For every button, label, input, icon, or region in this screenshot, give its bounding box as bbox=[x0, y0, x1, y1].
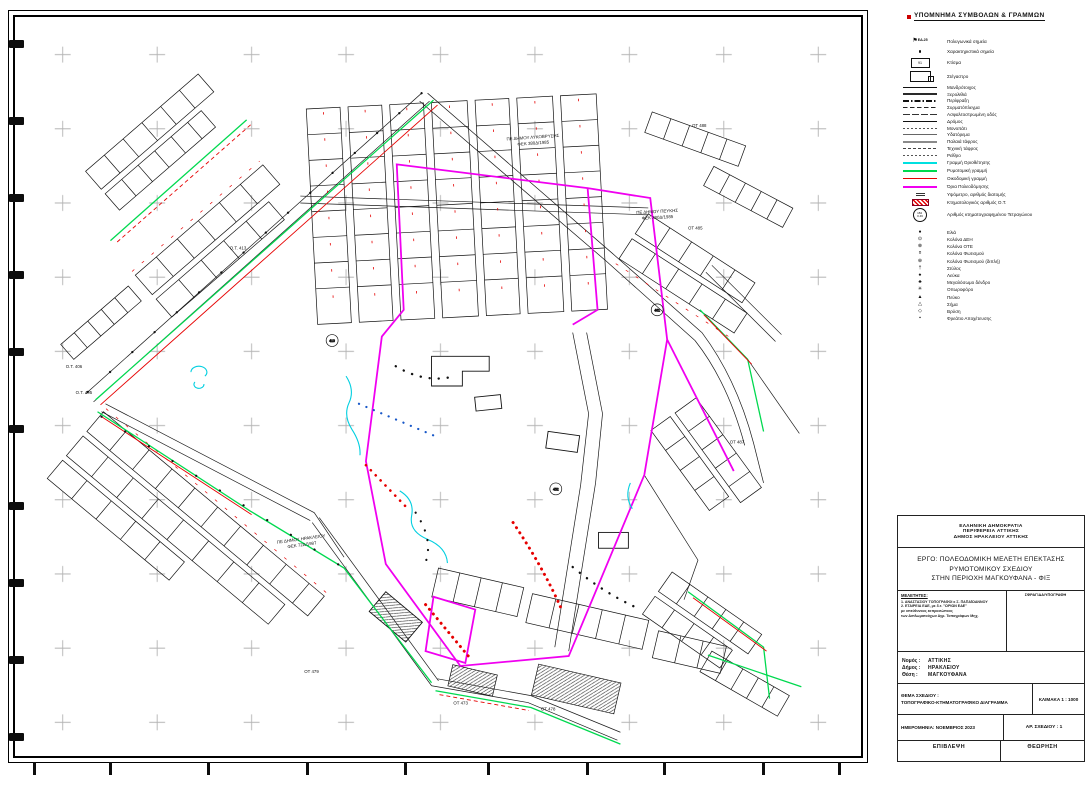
legend-item-label: Γραμμή Οριοθέτησης bbox=[947, 160, 990, 165]
legend-item-label: Πεύκο bbox=[947, 295, 960, 300]
legend-item-label: Κολόνα ΔΕΗ bbox=[947, 237, 973, 242]
legend-item: Μονοπάτι bbox=[893, 125, 1085, 132]
post-icon: † bbox=[893, 266, 947, 271]
poplar-tree-icon: ♠ bbox=[893, 273, 947, 278]
legend-point-item: ⊙ Κολόνα ΔΕΗ bbox=[893, 236, 1085, 243]
supervision-cell: ΕΠΙΒΛΕΨΗ bbox=[898, 741, 1001, 761]
subject-label: ΘΕΜΑ ΣΧΕΔΙΟΥ : bbox=[901, 693, 1029, 698]
drawing-number-cell: ΑΡ. ΣΧΕΔΙΟΥ : 1 bbox=[1004, 715, 1084, 740]
legend-point-item: † Στύλος bbox=[893, 265, 1085, 272]
legend-item: Συρματόπλεγμα bbox=[893, 104, 1085, 111]
legend-point-item: ♣ Μεγαλόσωμο δένδρο bbox=[893, 279, 1085, 286]
approval-cell: ΘΕΩΡΗΣΗ bbox=[1001, 741, 1084, 761]
map-canvas: 410 452 461 Ο.Τ. 413 Ο.Τ. 406 Ο.Τ. 405 Ο… bbox=[16, 18, 861, 755]
legend-item: Υψόμετρο, αριθμός διατομής bbox=[893, 191, 1085, 199]
legend-item: Στέγαστρο bbox=[893, 69, 1085, 84]
svg-text:ΟΤ 487: ΟΤ 487 bbox=[730, 439, 745, 444]
legend-item: Μανδρότοιχος bbox=[893, 84, 1085, 91]
subject-value: ΤΟΠΟΓΡΑΦΙΚΟ-ΚΤΗΜΑΤΟΓΡΑΦΙΚΟ ΔΙΑΓΡΑΜΜΑ bbox=[901, 700, 1029, 705]
legend-item: Ρείθρο bbox=[893, 152, 1085, 159]
legend-item-label: Μανδρότοιχος bbox=[947, 85, 976, 90]
legend-item: Τεχνική τάφρος bbox=[893, 145, 1085, 152]
svg-text:452: 452 bbox=[553, 487, 559, 491]
sign-icon: △ bbox=[893, 302, 947, 307]
grid-tick bbox=[404, 762, 407, 775]
legend-point-items: ● Ελιά ⊙ Κολόνα ΔΕΗ ⊗ Κολόνα ΟΤΕ ¤ Κολόν… bbox=[893, 229, 1085, 322]
fruit-tree-icon: ✳ bbox=[893, 287, 947, 292]
line-sample-icon bbox=[893, 128, 947, 129]
legend-point-item: ◇ Βρύση bbox=[893, 308, 1085, 315]
legend-item: Όρια Πολεοδόμησης bbox=[893, 183, 1085, 191]
legend-item-label: Περίφραξη bbox=[947, 98, 969, 103]
legend-item-label: Βρύση bbox=[947, 309, 961, 314]
legend-item-label: Στέγαστρο bbox=[947, 74, 968, 79]
legend-items: ⚑ΕΔ.25 Πολυγωνικά σημεία Χαρακτηριστικά … bbox=[893, 35, 1085, 223]
legend-point-item: ♠ Λεύκα bbox=[893, 272, 1085, 279]
legend-item-label: Πολυγωνικά σημεία bbox=[947, 39, 987, 44]
svg-text:Ο.Τ. 405: Ο.Τ. 405 bbox=[76, 390, 93, 395]
legend-item-label: Ρείθρο bbox=[947, 153, 961, 158]
legend-item: Γραμμή Οριοθέτησης bbox=[893, 159, 1085, 167]
stamp-heading: ΣΦΡΑΓΙΔΑ/ΥΠΟΓΡΑΦΗ bbox=[1007, 593, 1084, 597]
alignment-line-icon bbox=[893, 170, 947, 172]
prefecture-label: Νομός : bbox=[902, 658, 928, 664]
designers-heading: ΜΕΛΕΤΗΤΕΣ: bbox=[901, 593, 1003, 598]
grid-coordinate-tag bbox=[9, 425, 24, 433]
line-sample-icon bbox=[893, 100, 947, 101]
signature-section: ΕΠΙΒΛΕΨΗ ΘΕΩΡΗΣΗ bbox=[898, 741, 1084, 761]
legend-item-label: Σήμα bbox=[947, 302, 958, 307]
line-sample-icon bbox=[893, 93, 947, 95]
svg-text:Ο.Τ. 413: Ο.Τ. 413 bbox=[230, 245, 247, 250]
legend-item-label: Κολόνα Φωτισμού bbox=[947, 251, 984, 256]
authority-line: ΕΛΛΗΝΙΚΗ ΔΗΜΟΚΡΑΤΙΑ bbox=[959, 524, 1022, 529]
prefecture-value: ΑΤΤΙΚΗΣ bbox=[928, 658, 951, 664]
grid-tick bbox=[586, 762, 589, 775]
authority-line: ΔΗΜΟΣ ΗΡΑΚΛΕΙΟΥ ΑΤΤΙΚΗΣ bbox=[954, 535, 1029, 540]
drawing-sheet: 410 452 461 Ο.Τ. 413 Ο.Τ. 406 Ο.Τ. 405 Ο… bbox=[0, 0, 1089, 790]
legend-item: Οικοδομική γραμμή bbox=[893, 175, 1085, 183]
grid-tick bbox=[207, 762, 210, 775]
block-circle-icon: 1840.46 bbox=[893, 208, 947, 222]
legend-point-item: ▲ Πεύκο bbox=[893, 293, 1085, 300]
telecom-pole-icon: ⊗ bbox=[893, 244, 947, 249]
legend-item: Παλαιά τάφρος bbox=[893, 138, 1085, 145]
project-title-section: ΕΡΓΟ: ΠΟΛΕΟΔΟΜΙΚΗ ΜΕΛΕΤΗ ΕΠΕΚΤΑΣΗΣ ΡΥΜΟΤ… bbox=[898, 548, 1084, 591]
manhole-icon: ▪ bbox=[893, 316, 947, 321]
legend-item: 91 Κτίσμα bbox=[893, 56, 1085, 69]
benchmark-code: ΕΔ.25 bbox=[918, 39, 928, 43]
legend-item-label: Συρματόπλεγμα bbox=[947, 105, 980, 110]
grid-tick bbox=[838, 762, 841, 775]
title-block: ΕΛΛΗΝΙΚΗ ΔΗΜΟΚΡΑΤΙΑ ΠΕΡΙΦΕΡΕΙΑ ΑΤΤΙΚΗΣ Δ… bbox=[897, 515, 1085, 762]
line-sample-icon bbox=[893, 134, 947, 135]
svg-text:ΟΤ 478: ΟΤ 478 bbox=[541, 706, 556, 711]
legend-item-label: Κολόνα Φωτισμού (διπλή) bbox=[947, 259, 1000, 264]
legend-point-item: ▪ Φρεάτιο Αποχέτευσης bbox=[893, 315, 1085, 322]
legend-point-item: △ Σήμα bbox=[893, 301, 1085, 308]
grid-coordinate-tag bbox=[9, 733, 24, 741]
legend-item-label: Φρεάτιο Αποχέτευσης bbox=[947, 316, 991, 321]
legend-item-label: Παλαιά τάφρος bbox=[947, 139, 978, 144]
grid-tick bbox=[663, 762, 666, 775]
legend-item-label: Ελιά bbox=[947, 230, 956, 235]
grid-tick bbox=[306, 762, 309, 775]
svg-text:Ο.Τ. 406: Ο.Τ. 406 bbox=[66, 364, 83, 369]
project-title-line: ΣΤΗΝ ΠΕΡΙΟΧΗ ΜΑΓΚΟΥΦΑΝΑ - ΦΙΞ bbox=[932, 575, 1051, 582]
legend-item: ⚑ΕΔ.25 Πολυγωνικά σημεία bbox=[893, 35, 1085, 47]
legend-item: Κτηματολογικός αριθμός Ο.Τ. bbox=[893, 199, 1085, 207]
benchmark-icon: ⚑ΕΔ.25 bbox=[893, 38, 947, 44]
legend-item-label: Υψόμετρο, αριθμός διατομής bbox=[947, 192, 1006, 197]
legend-point-item: ✳ Οπωροφόρο bbox=[893, 286, 1085, 293]
legend-item-label: Λεύκα bbox=[947, 273, 960, 278]
map-frame: 410 452 461 Ο.Τ. 413 Ο.Τ. 406 Ο.Τ. 405 Ο… bbox=[8, 10, 868, 763]
legend-item-label: Όρια Πολεοδόμησης bbox=[947, 184, 989, 189]
legend-bullet-icon bbox=[907, 15, 911, 19]
legend-header: ΥΠΟΜΝΗΜΑ ΣΥΜΒΟΛΩΝ & ΓΡΑΜΜΩΝ bbox=[893, 12, 1085, 21]
legend-point-item: ● Ελιά bbox=[893, 229, 1085, 236]
building-line-icon bbox=[893, 178, 947, 179]
grid-coordinate-tag bbox=[9, 579, 24, 587]
cadastral-number-icon bbox=[893, 199, 947, 206]
legend-item-label: Οπωροφόρο bbox=[947, 287, 973, 292]
subject-section: ΘΕΜΑ ΣΧΕΔΙΟΥ : ΤΟΠΟΓΡΑΦΙΚΟ-ΚΤΗΜΑΤΟΓΡΑΦΙΚ… bbox=[898, 684, 1084, 715]
legend-item: 1840.46 Αριθμός κτηματογραφημένου Τετραγ… bbox=[893, 207, 1085, 223]
date-cell: ΗΜΕΡΟΜΗΝΙΑ: ΝΟΕΜΒΡΙΟΣ 2023 bbox=[898, 715, 1004, 740]
legend-item-label: Χαρακτηριστικά σημεία bbox=[947, 49, 994, 54]
line-sample-icon bbox=[893, 121, 947, 122]
legend-item: Ασφαλτοστρωμένη οδός bbox=[893, 111, 1085, 118]
location-value: ΜΑΓΚΟΥΦΑΝΑ bbox=[928, 672, 967, 678]
grid-tick bbox=[487, 762, 490, 775]
svg-text:ΟΤ 488: ΟΤ 488 bbox=[692, 123, 707, 128]
grid-coordinate-tag bbox=[9, 40, 24, 48]
legend-item: Χαρακτηριστικά σημεία bbox=[893, 47, 1085, 56]
line-sample-icon bbox=[893, 114, 947, 115]
scale-cell: ΚΛΙΜΑΚΑ 1 : 1000 bbox=[1033, 684, 1084, 714]
legend-item-label: Κολόνα ΟΤΕ bbox=[947, 244, 973, 249]
legend-item: Περίφραξη bbox=[893, 98, 1085, 105]
planning-boundary-icon bbox=[893, 186, 947, 188]
legend-item-label: Μονοπάτι bbox=[947, 126, 967, 131]
designer-line: των Διπλωματούχων Αγρ. Τοπογράφων Μηχ. bbox=[901, 614, 1003, 619]
point-icon bbox=[893, 50, 947, 53]
legend-item-label: Κτηματολογικός αριθμός Ο.Τ. bbox=[947, 200, 1006, 205]
legend-item-label: Υδατόρεμα bbox=[947, 132, 970, 137]
legend-item-label: Δρόμος bbox=[947, 119, 963, 124]
grid-coordinate-tag bbox=[9, 194, 24, 202]
grid-coordinate-tag bbox=[9, 271, 24, 279]
grid-coordinate-tag bbox=[9, 502, 24, 510]
legend-item-label: Μεγαλόσωμο δένδρο bbox=[947, 280, 990, 285]
legend-item: Υδατόρεμα bbox=[893, 132, 1085, 139]
project-title-line: ΕΡΓΟ: ΠΟΛΕΟΔΟΜΙΚΗ ΜΕΛΕΤΗ ΕΠΕΚΤΑΣΗΣ bbox=[917, 556, 1064, 563]
svg-text:ΟΤ 485: ΟΤ 485 bbox=[688, 226, 703, 231]
legend-item: Ξερολιθιά bbox=[893, 91, 1085, 98]
legend-point-item: ¤ Κολόνα Φωτισμού bbox=[893, 250, 1085, 257]
grid-tick bbox=[762, 762, 765, 775]
legend-item-label: Ρυμοτομική γραμμή bbox=[947, 168, 987, 173]
olive-tree-icon: ● bbox=[893, 230, 947, 235]
legend-item-label: Οικοδομική γραμμή bbox=[947, 176, 987, 181]
building-icon: 91 bbox=[893, 58, 947, 68]
legend-point-item: ⊕ Κολόνα Φωτισμού (διπλή) bbox=[893, 258, 1085, 265]
designers-section: ΜΕΛΕΤΗΤΕΣ: 1. ΑΝΑΣΤΑΣΙΟΥ ΤΟΠΟΓΡΑΦΟΙ κ Σ.… bbox=[898, 591, 1084, 652]
designers-cell: ΜΕΛΕΤΗΤΕΣ: 1. ΑΝΑΣΤΑΣΙΟΥ ΤΟΠΟΓΡΑΦΟΙ κ Σ.… bbox=[898, 591, 1007, 651]
legend-item-label: Ασφαλτοστρωμένη οδός bbox=[947, 112, 997, 117]
svg-text:ΟΤ 473: ΟΤ 473 bbox=[453, 701, 468, 706]
grid-coordinate-tag bbox=[9, 348, 24, 356]
map-inner-frame: 410 452 461 Ο.Τ. 413 Ο.Τ. 406 Ο.Τ. 405 Ο… bbox=[13, 15, 863, 758]
grid-tick bbox=[33, 762, 36, 775]
large-tree-icon: ♣ bbox=[893, 280, 947, 285]
municipality-value: ΗΡΑΚΛΕΙΟΥ bbox=[928, 665, 960, 671]
legend-point-item: ⊗ Κολόνα ΟΤΕ bbox=[893, 243, 1085, 250]
legend: ΥΠΟΜΝΗΜΑ ΣΥΜΒΟΛΩΝ & ΓΡΑΜΜΩΝ ⚑ΕΔ.25 Πολυγ… bbox=[893, 12, 1085, 322]
line-sample-icon bbox=[893, 87, 947, 88]
location-label: Θέση : bbox=[902, 672, 928, 678]
line-sample-icon bbox=[893, 155, 947, 156]
svg-text:410: 410 bbox=[329, 339, 335, 343]
svg-text:461: 461 bbox=[654, 308, 660, 312]
elevation-fraction-icon bbox=[893, 193, 947, 197]
demarcation-line-icon bbox=[893, 162, 947, 164]
light-pole-icon: ¤ bbox=[893, 251, 947, 256]
pine-tree-icon: ▲ bbox=[893, 295, 947, 300]
legend-item: Δρόμος bbox=[893, 118, 1085, 125]
legend-item-label: Ξερολιθιά bbox=[947, 92, 967, 97]
grid-tick bbox=[109, 762, 112, 775]
stamp-cell: ΣΦΡΑΓΙΔΑ/ΥΠΟΓΡΑΦΗ bbox=[1007, 591, 1084, 651]
power-pole-icon: ⊙ bbox=[893, 237, 947, 242]
authority-line: ΠΕΡΙΦΕΡΕΙΑ ΑΤΤΙΚΗΣ bbox=[963, 529, 1019, 534]
legend-item-label: Τεχνική τάφρος bbox=[947, 146, 978, 151]
legend-item-label: Κτίσμα bbox=[947, 60, 961, 65]
project-title-line: ΡΥΜΟΤΟΜΙΚΟΥ ΣΧΕΔΙΟΥ bbox=[949, 566, 1032, 573]
legend-item-label: Αριθμός κτηματογραφημένου Τετραγώνου bbox=[947, 212, 1032, 217]
grid-coordinate-tag bbox=[9, 656, 24, 664]
legend-item: Ρυμοτομική γραμμή bbox=[893, 167, 1085, 175]
municipality-label: Δήμος : bbox=[902, 665, 928, 671]
line-sample-icon bbox=[893, 148, 947, 149]
subject-cell: ΘΕΜΑ ΣΧΕΔΙΟΥ : ΤΟΠΟΓΡΑΦΙΚΟ-ΚΤΗΜΑΤΟΓΡΑΦΙΚ… bbox=[898, 684, 1033, 714]
location-section: Νομός : ΑΤΤΙΚΗΣ Δήμος : ΗΡΑΚΛΕΙΟΥ Θέση :… bbox=[898, 652, 1084, 684]
line-sample-icon bbox=[893, 141, 947, 143]
legend-item-label: Στύλος bbox=[947, 266, 961, 271]
svg-text:ΟΤ 479: ΟΤ 479 bbox=[304, 669, 319, 674]
shed-icon bbox=[893, 71, 947, 82]
legend-title: ΥΠΟΜΝΗΜΑ ΣΥΜΒΟΛΩΝ & ΓΡΑΜΜΩΝ bbox=[914, 12, 1045, 21]
fountain-icon: ◇ bbox=[893, 309, 947, 314]
double-light-pole-icon: ⊕ bbox=[893, 259, 947, 264]
date-section: ΗΜΕΡΟΜΗΝΙΑ: ΝΟΕΜΒΡΙΟΣ 2023 ΑΡ. ΣΧΕΔΙΟΥ :… bbox=[898, 715, 1084, 741]
authority-section: ΕΛΛΗΝΙΚΗ ΔΗΜΟΚΡΑΤΙΑ ΠΕΡΙΦΕΡΕΙΑ ΑΤΤΙΚΗΣ Δ… bbox=[898, 516, 1084, 548]
grid-coordinate-tag bbox=[9, 117, 24, 125]
line-sample-icon bbox=[893, 107, 947, 108]
